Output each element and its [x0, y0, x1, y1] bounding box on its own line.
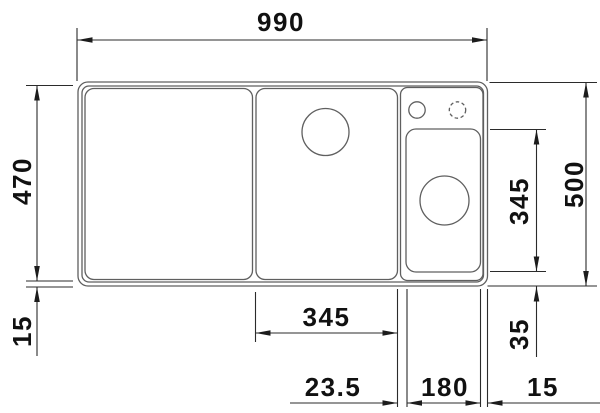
- main-bowl: [256, 89, 398, 280]
- arrow-345-bottom-left: [256, 330, 271, 336]
- small-bowl-drain-hole: [420, 176, 469, 225]
- arrow-470-up: [34, 86, 40, 101]
- sink-dimension-diagram: 990 470 15 500 345 35 345 23.5 180 15: [0, 0, 600, 413]
- arrow-180-left: [407, 400, 422, 406]
- arrow-470-down: [34, 266, 40, 281]
- faucet-hole: [409, 102, 425, 118]
- arrow-35-up: [534, 287, 540, 302]
- arrow-345-bottom-right: [383, 330, 398, 336]
- label-overall-width: 990: [257, 7, 305, 37]
- arrow-345-right-down: [534, 257, 540, 272]
- label-right-bowl-width: 180: [421, 372, 469, 402]
- label-inner-depth: 470: [7, 157, 37, 205]
- accessory-hole-dashed: [449, 102, 465, 118]
- main-bowl-drain-hole: [302, 109, 349, 156]
- sink: [78, 82, 488, 286]
- arrow-345-right-up: [534, 130, 540, 145]
- label-main-bowl-width: 345: [303, 302, 351, 332]
- arrow-990-left: [78, 37, 93, 43]
- arrow-500-down: [583, 271, 589, 286]
- label-overall-depth: 500: [559, 160, 589, 208]
- arrow-990-right: [472, 37, 487, 43]
- dimension-labels: 990 470 15 500 345 35 345 23.5 180 15: [7, 7, 589, 402]
- arrow-15-left-up: [34, 287, 40, 302]
- label-rear-gap: 35: [504, 318, 534, 350]
- arrow-15-right-left: [488, 400, 503, 406]
- arrow-23-5-right: [383, 400, 398, 406]
- arrow-500-up: [583, 83, 589, 98]
- drainboard: [85, 89, 253, 280]
- label-right-rim: 15: [527, 372, 559, 402]
- label-right-bowl-length: 345: [504, 177, 534, 225]
- label-divider-width: 23.5: [305, 372, 362, 402]
- label-front-rim: 15: [7, 315, 37, 347]
